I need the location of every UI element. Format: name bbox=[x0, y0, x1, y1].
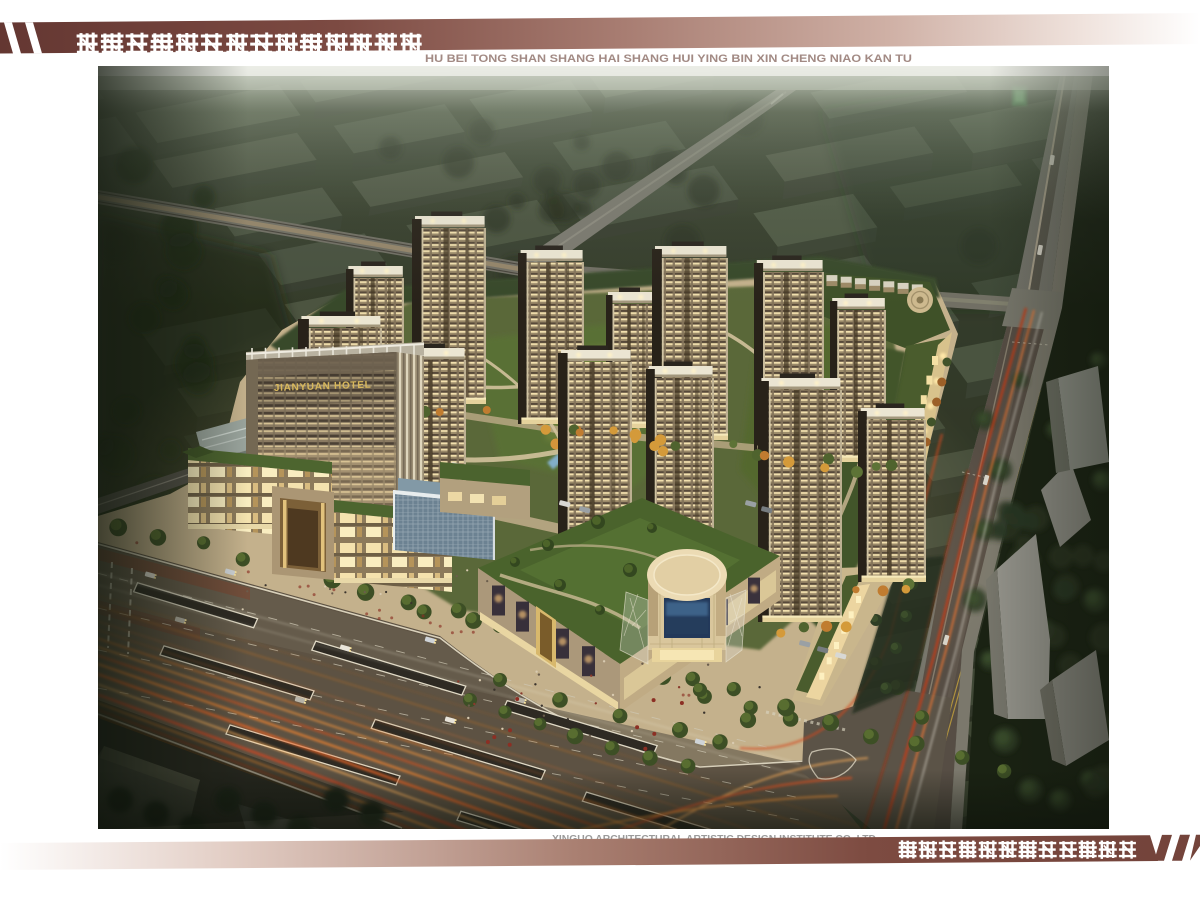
svg-text:HU BEI TONG SHAN SHANG HAI SHA: HU BEI TONG SHAN SHANG HAI SHANG HUI YIN… bbox=[425, 53, 912, 65]
